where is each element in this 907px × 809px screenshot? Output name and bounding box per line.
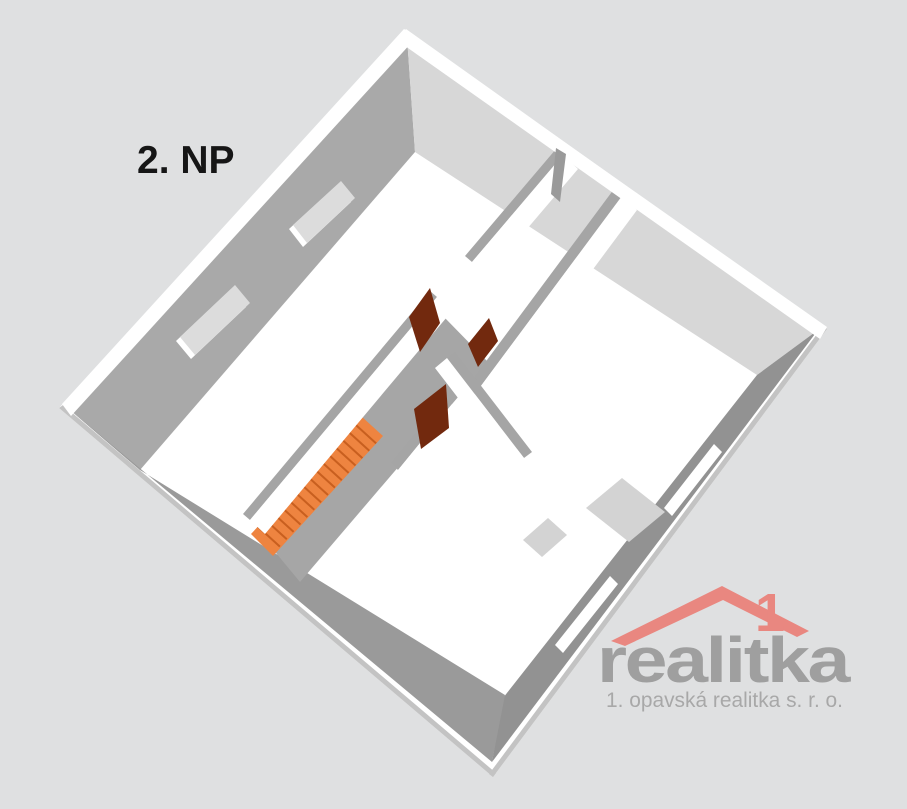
floor-label: 2. NP xyxy=(137,139,235,182)
floor-plan-image: 2. NP 1 realitka 1. opavská realitka s. … xyxy=(0,0,907,809)
floor-plan-3d: 2. NP 1 realitka 1. opavská realitka s. … xyxy=(0,0,907,809)
brand-tagline: 1. opavská realitka s. r. o. xyxy=(606,689,843,712)
brand-name: realitka xyxy=(597,624,851,696)
